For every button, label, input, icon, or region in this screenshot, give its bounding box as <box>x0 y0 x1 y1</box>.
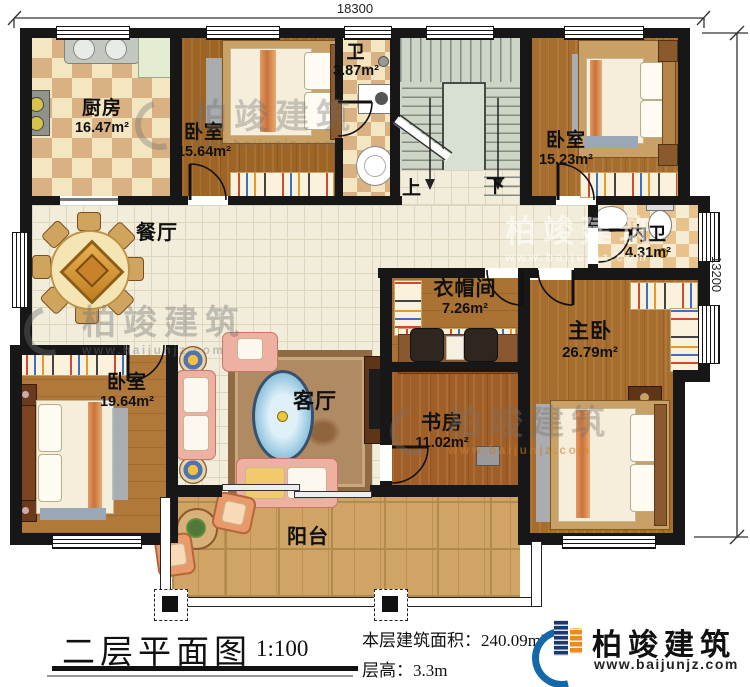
window <box>344 26 392 40</box>
room-label-bedroom-c: 卧室19.64m² <box>86 372 168 411</box>
stair-right-flight <box>482 80 520 170</box>
sink-bowl <box>105 38 127 60</box>
room-label-study: 书房11.02m² <box>406 412 478 452</box>
wall <box>335 138 343 196</box>
wall <box>378 268 485 278</box>
wall <box>596 196 710 205</box>
sofa-three-seat <box>176 370 216 460</box>
room-label-cloakroom: 衣帽间7.26m² <box>424 278 506 318</box>
bed-footboard <box>40 508 106 520</box>
window <box>698 212 720 262</box>
wall <box>678 28 690 205</box>
wall <box>390 38 400 196</box>
desk-chair <box>464 328 498 362</box>
sliding-door-panel <box>294 491 372 498</box>
title-rule-thick <box>52 666 358 671</box>
wall <box>10 345 22 545</box>
wall <box>228 196 402 205</box>
balcony-railing <box>160 597 542 607</box>
bed-blanket <box>590 60 602 140</box>
wall <box>10 345 126 355</box>
drawing-scale: 1:100 <box>256 636 308 662</box>
wall <box>588 264 598 270</box>
desk-chair <box>410 328 444 362</box>
wardrobe <box>630 282 698 310</box>
wall <box>170 38 182 196</box>
wall <box>20 196 60 205</box>
room-label-living: 客厅 <box>286 390 344 414</box>
dining-chair <box>77 212 101 231</box>
coffee-table <box>252 370 314 462</box>
plant-stand <box>179 456 207 484</box>
stair-void <box>442 82 486 170</box>
room-label-balcony: 阳台 <box>278 526 338 549</box>
wall <box>588 205 598 228</box>
brand-logo-building <box>554 620 568 656</box>
armchair-pillow <box>237 338 263 360</box>
washer-door <box>375 92 388 105</box>
chair-cushion <box>221 500 247 526</box>
floor-area-text: 本层建筑面积：240.09m² <box>362 626 546 651</box>
desk-pad <box>446 336 464 360</box>
window <box>56 26 130 40</box>
balcony-pillar <box>374 589 408 621</box>
dining-table <box>50 230 130 310</box>
table-runner <box>59 239 124 304</box>
balcony-railing <box>531 541 542 607</box>
bed-blanket <box>88 402 102 510</box>
bed-headboard <box>662 46 676 154</box>
wall <box>673 380 685 545</box>
balcony-chair <box>210 490 257 535</box>
sofa-cushion <box>183 415 209 451</box>
room-label-kitchen: 厨房16.47m² <box>52 98 152 137</box>
window <box>52 535 142 549</box>
brand-site: www.baijunjz.com <box>594 656 739 672</box>
room-label-dining: 餐厅 <box>130 222 184 245</box>
dining-chair <box>32 255 51 279</box>
bed-mattress <box>558 408 636 522</box>
bed-pillow <box>38 404 62 452</box>
armchair <box>222 332 278 372</box>
room-label-bedroom-a: 卧室15.64m² <box>172 122 236 161</box>
bedside-rug <box>112 408 128 500</box>
brand-logo: 柏竣建筑 www.baijunjz.com <box>532 616 746 682</box>
dresser <box>230 172 334 198</box>
sofa-cushion <box>245 467 285 499</box>
dresser <box>580 172 678 198</box>
threshold <box>60 198 118 201</box>
nightstand <box>658 40 678 62</box>
sliding-door-panel <box>222 484 300 491</box>
wall <box>380 268 392 445</box>
dimension-top: 18300 <box>325 1 385 16</box>
floor-plan: 18300 13200 厨房16.47m² 卧室15.64m² 卫3.87m² … <box>0 0 750 687</box>
bed-headboard <box>654 404 667 526</box>
sofa-cushion <box>183 377 209 413</box>
window <box>206 26 280 40</box>
room-label-inner-bath: 内卫4.31m² <box>614 224 682 261</box>
bed-blanket <box>260 50 276 132</box>
wall <box>118 196 188 205</box>
bed-pillow <box>38 454 62 502</box>
speaker-box <box>476 446 500 466</box>
stair-left-flight <box>402 80 442 170</box>
wall <box>392 362 518 372</box>
stair-upper-flight <box>400 38 520 82</box>
wall <box>518 268 530 535</box>
bed-blanket <box>576 410 590 518</box>
window <box>564 26 644 40</box>
wardrobe <box>670 308 700 372</box>
basin-bowl <box>364 155 386 177</box>
wash-basin <box>356 146 394 186</box>
stairs-up-label: 上 <box>400 178 424 200</box>
dimension-right: 13200 <box>709 256 724 316</box>
floor-height-text: 层高：3.3m <box>362 656 447 681</box>
room-label-bedroom-b: 卧室15.23m² <box>528 130 604 169</box>
wall <box>370 485 528 497</box>
window <box>12 232 28 308</box>
wall <box>380 481 392 489</box>
table-centerpiece <box>75 254 109 288</box>
title-rule-thin <box>47 675 353 677</box>
wall <box>520 38 532 205</box>
room-label-master: 主卧26.79m² <box>550 320 630 361</box>
balcony-pillar <box>154 589 188 621</box>
hallway-floor <box>380 205 588 268</box>
staircase <box>400 38 520 170</box>
nightstand <box>658 144 678 166</box>
washing-machine <box>358 84 392 114</box>
sink-bowl <box>73 38 95 60</box>
window <box>562 535 656 549</box>
room-label-bath: 卫3.87m² <box>322 42 390 79</box>
brand-logo-building <box>570 628 582 654</box>
wall <box>528 196 556 205</box>
kitchen-corner-counter <box>138 32 172 78</box>
window <box>426 26 494 40</box>
stairs-down-label: 下 <box>484 176 508 198</box>
